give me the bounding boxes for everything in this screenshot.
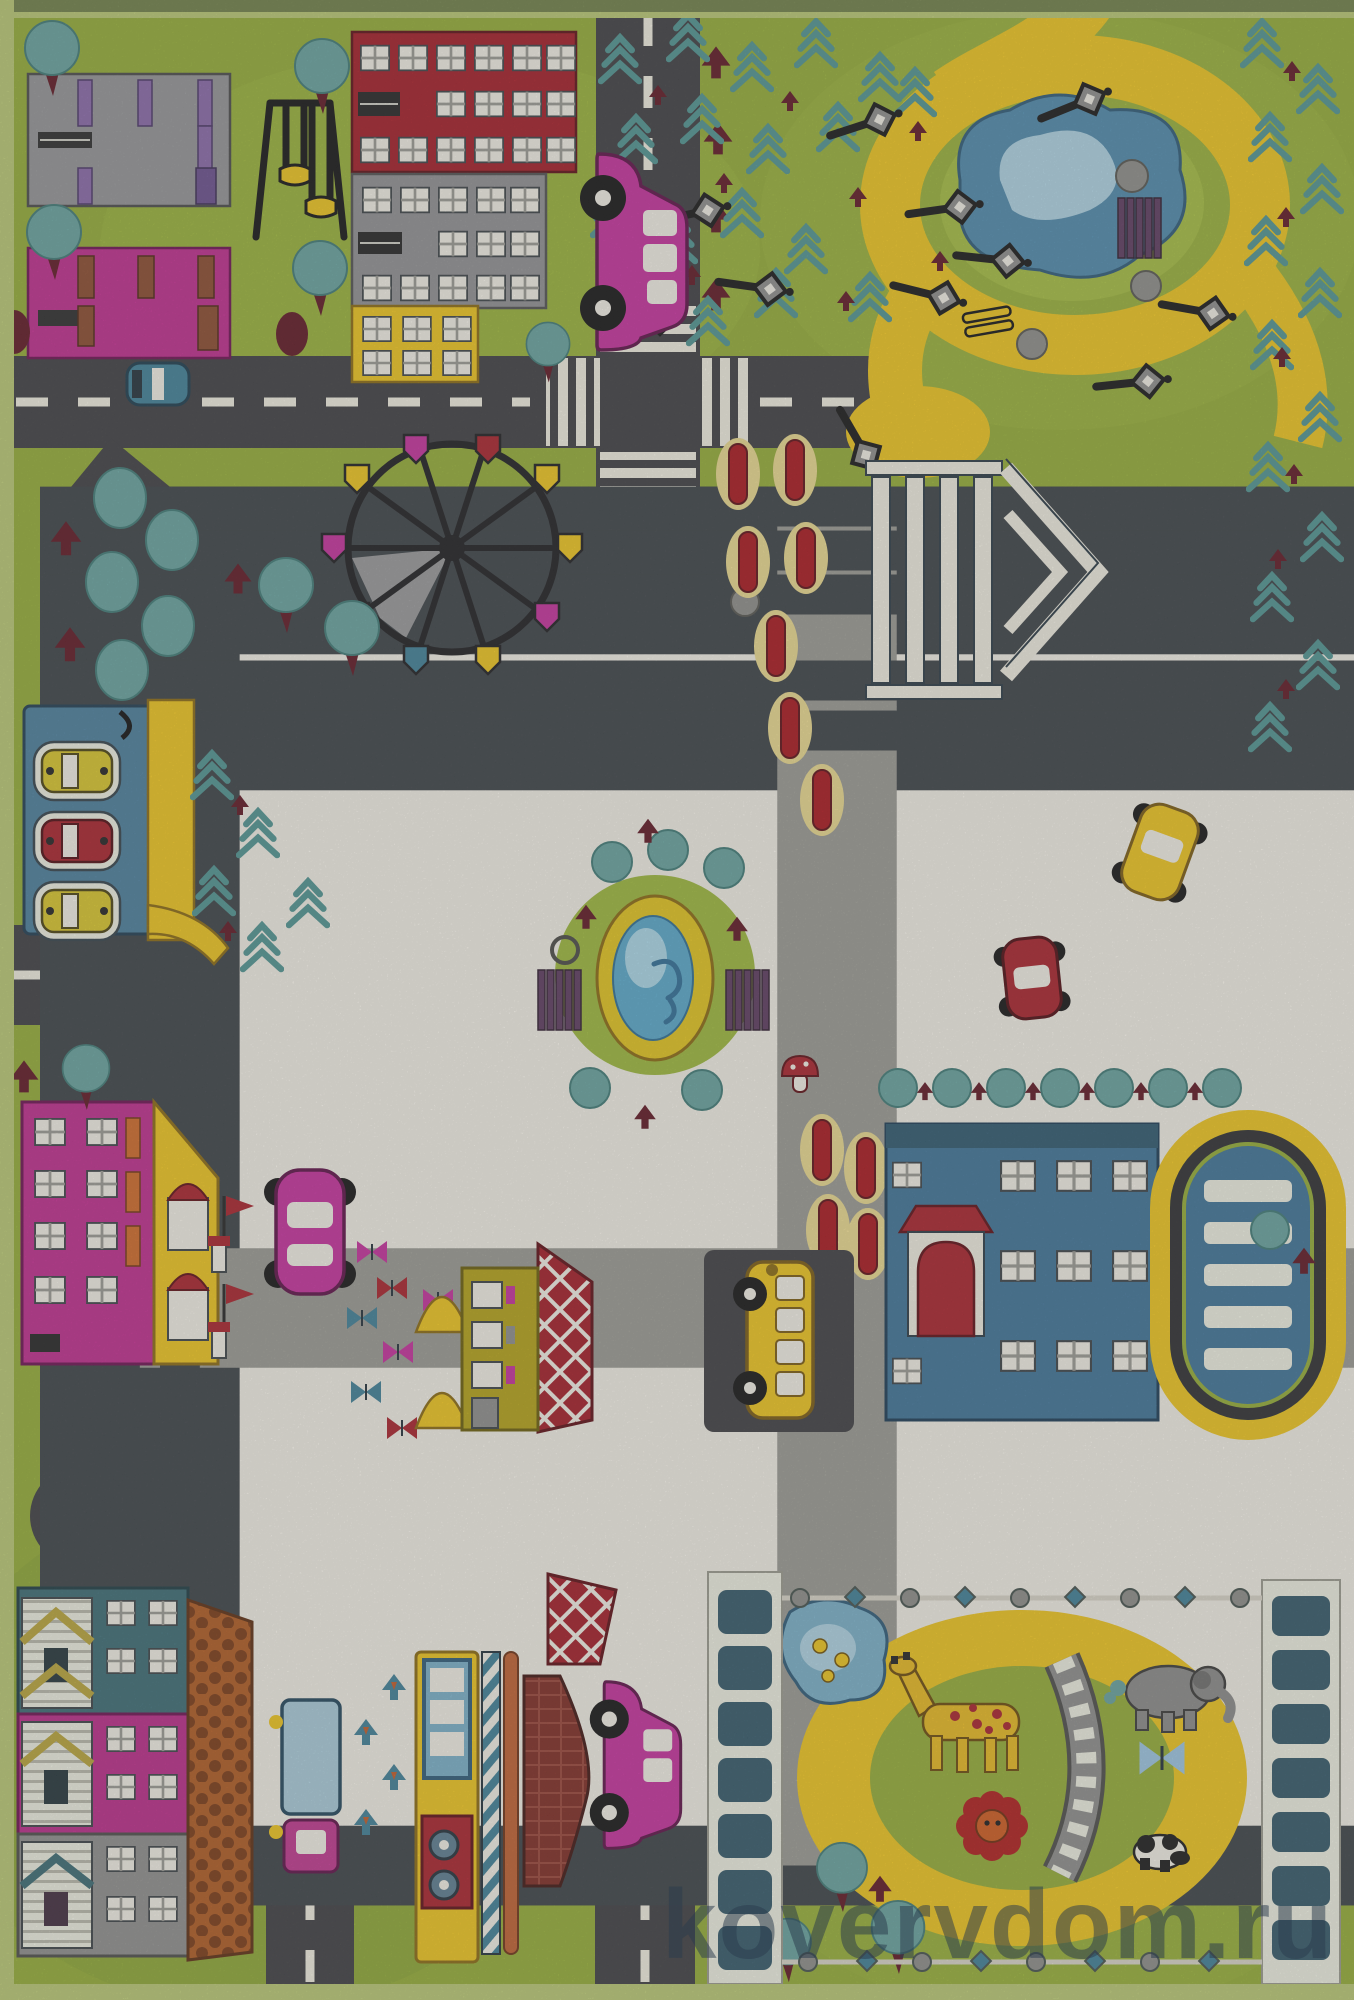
carpet-texture [0,0,1354,2000]
watermark: kovervdom.ru [662,1869,1334,1979]
rug-photo: kovervdom.ru [0,0,1354,2000]
